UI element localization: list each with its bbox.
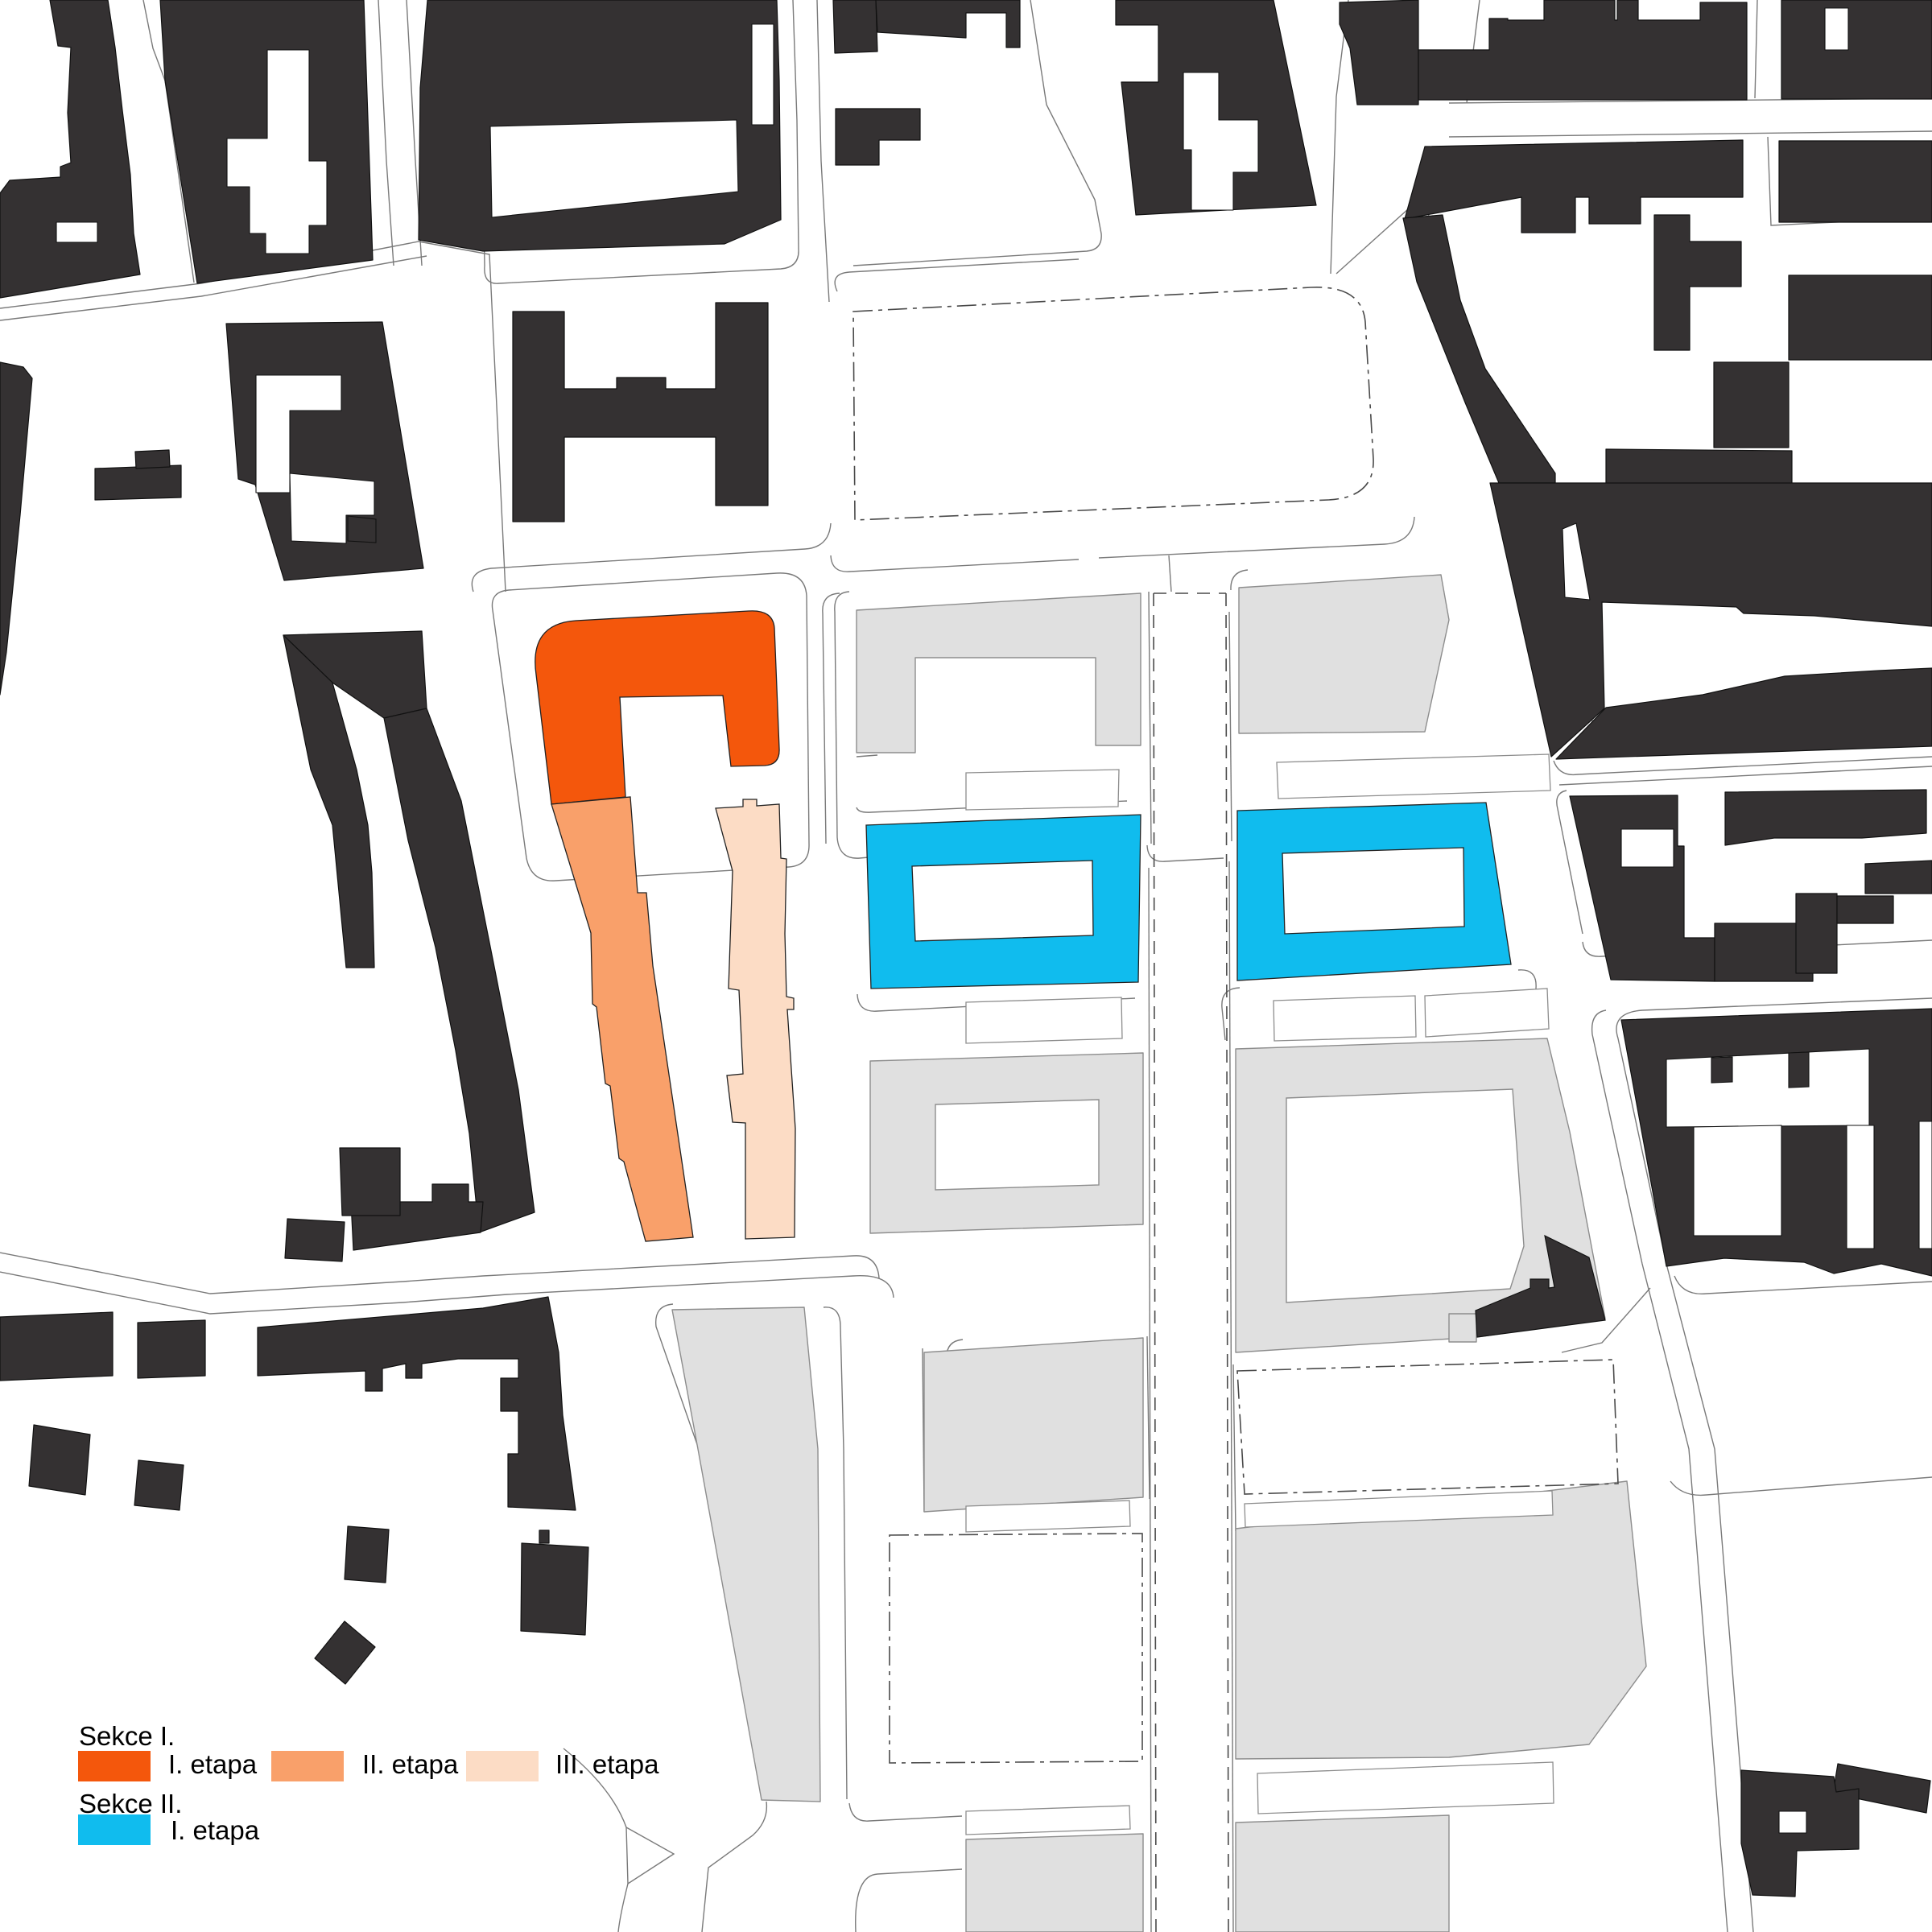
svg-text:Sekce II.: Sekce II. xyxy=(79,1789,182,1818)
svg-text:Sekce I.: Sekce I. xyxy=(79,1721,175,1751)
svg-text:II. etapa: II. etapa xyxy=(362,1749,459,1779)
svg-text:III. etapa: III. etapa xyxy=(555,1749,659,1779)
svg-text:I. etapa: I. etapa xyxy=(168,1749,258,1779)
svg-text:I. etapa: I. etapa xyxy=(171,1815,260,1845)
